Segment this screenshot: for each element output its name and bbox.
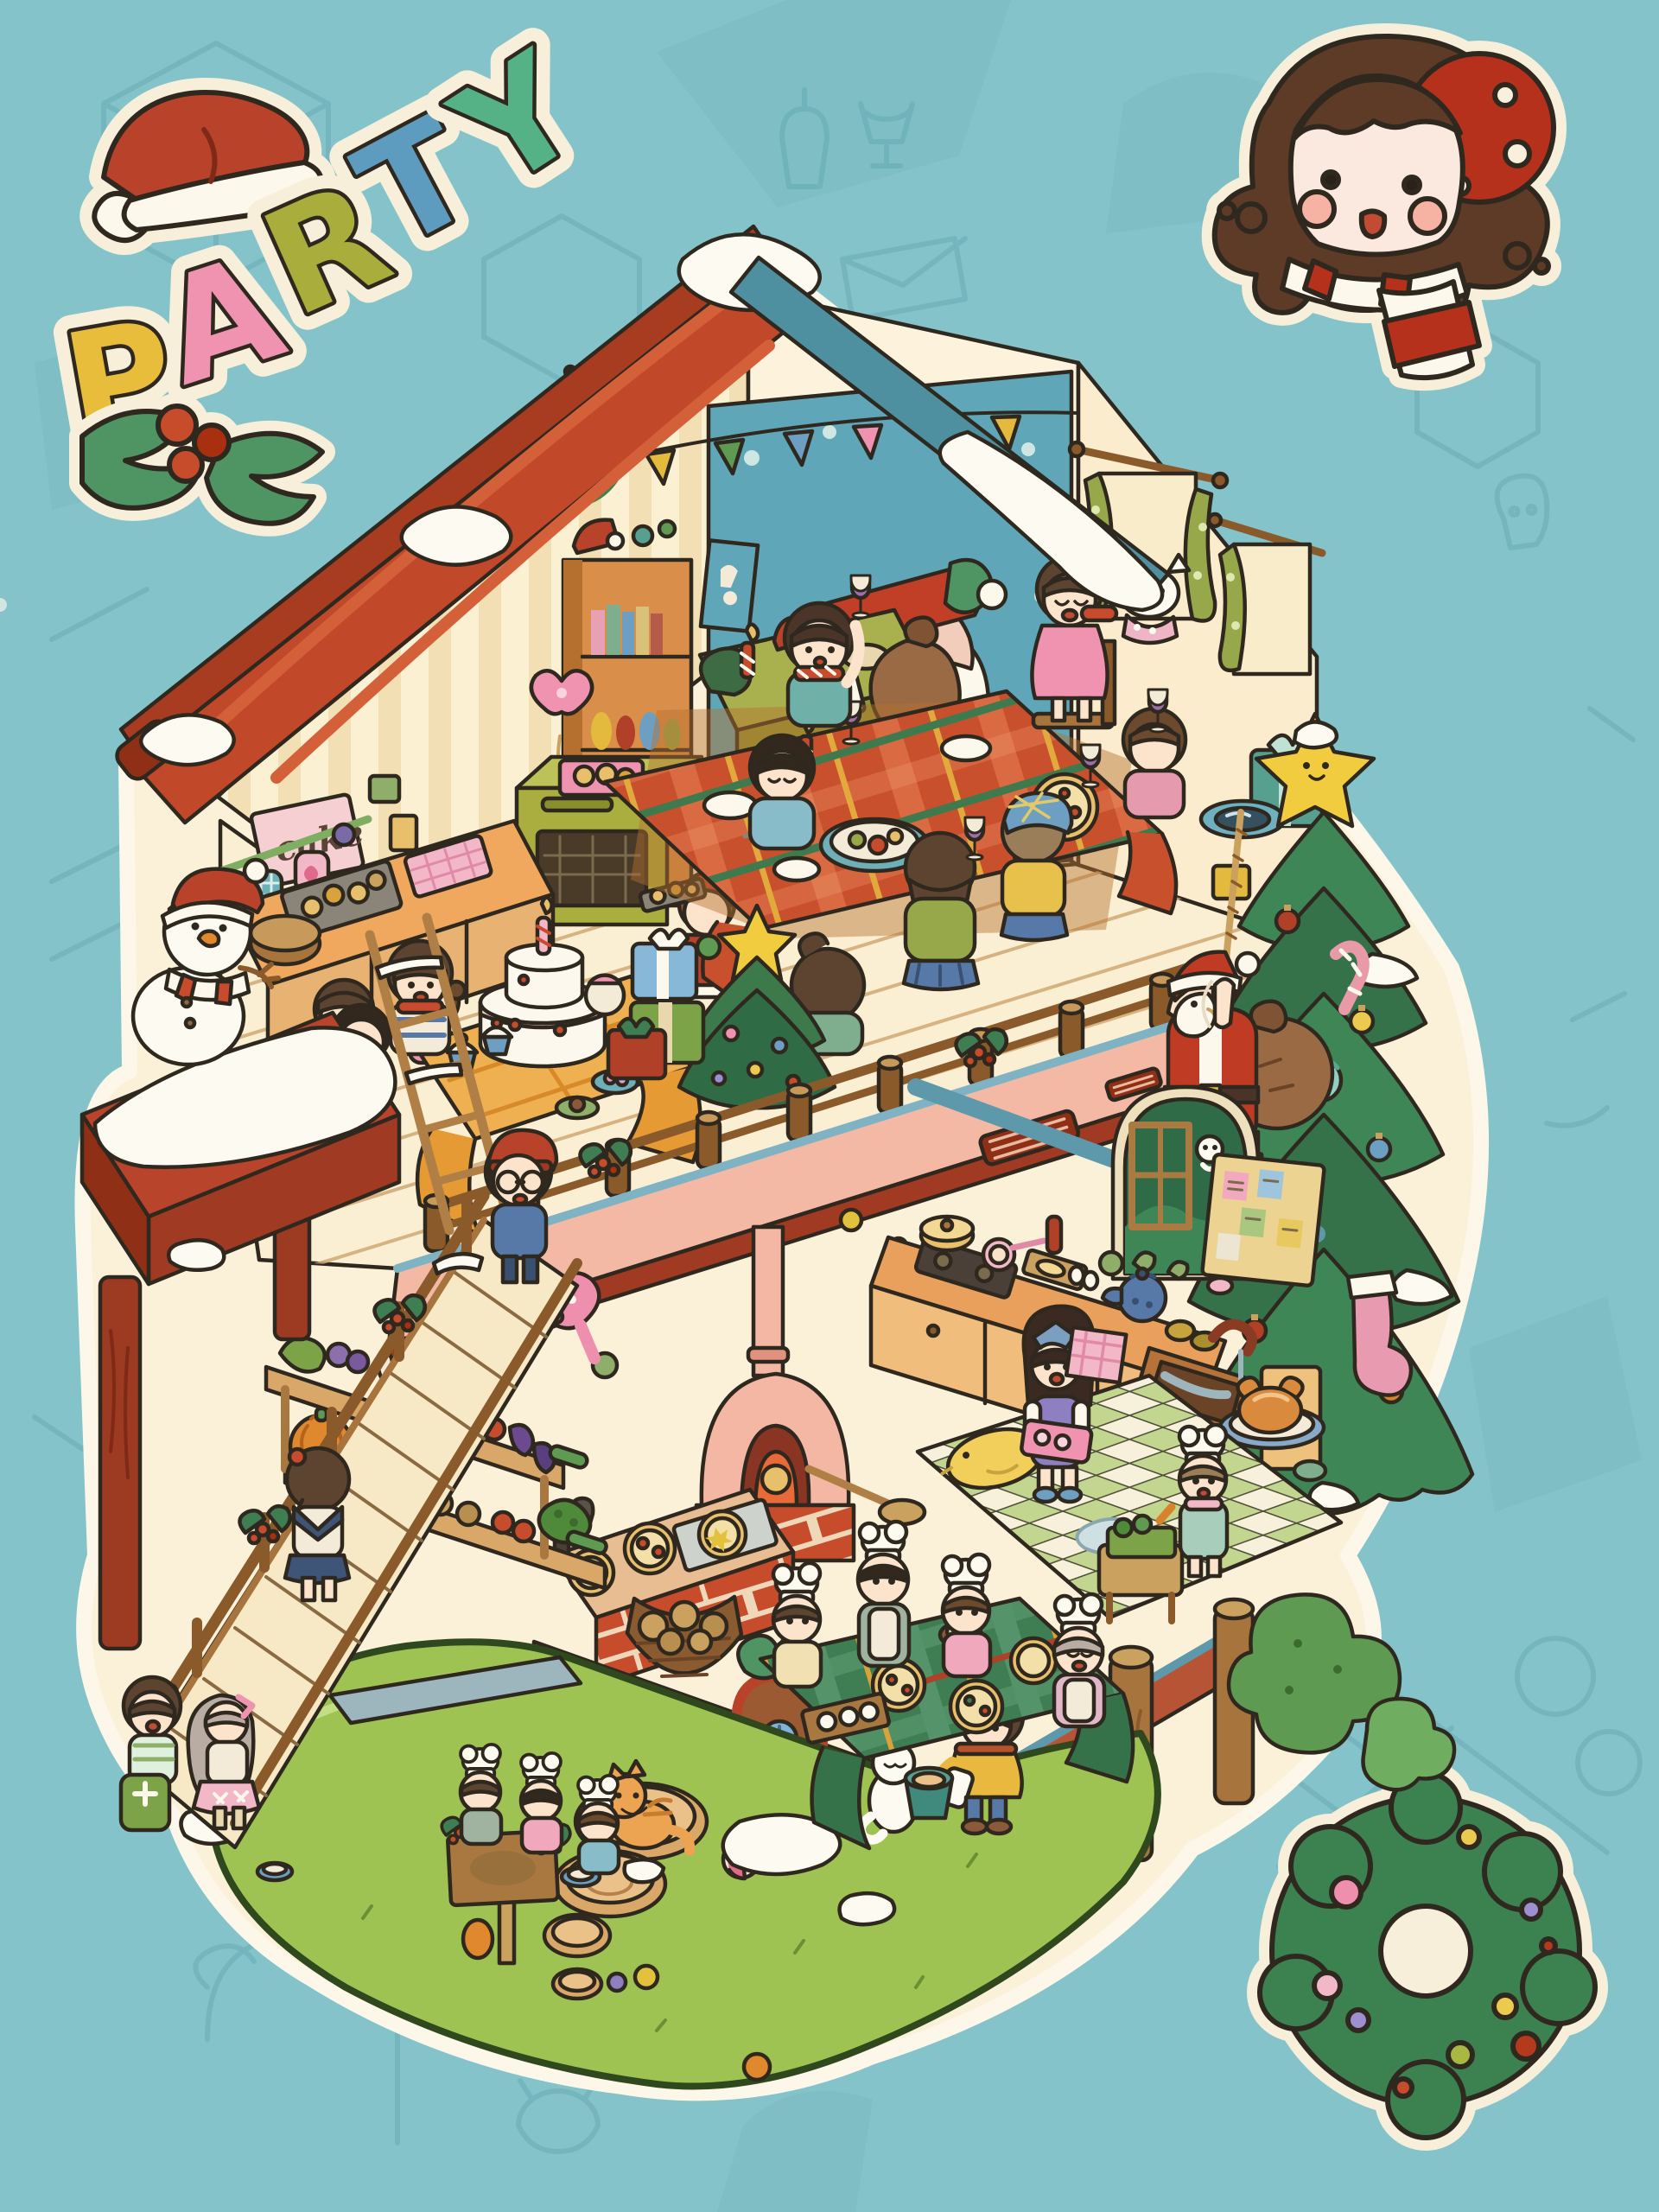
kid-boy-seated-left (750, 735, 814, 849)
hanging-towel (1066, 1327, 1126, 1382)
frame-art-small (701, 540, 758, 631)
food-bucket (906, 1768, 952, 1818)
illustration-canvas: P P A A R R T T Y Y (0, 0, 1659, 2212)
sticker-holly (82, 406, 322, 524)
chef-granny (1054, 1594, 1104, 1726)
kid-sailor-girl (285, 1448, 349, 1600)
sticker-girl (1215, 36, 1554, 378)
sticker-wreath-large (1260, 1753, 1595, 2138)
kid-girl-beret-front (1001, 793, 1071, 940)
notes-board (1202, 1154, 1325, 1287)
window-right (1209, 514, 1322, 674)
